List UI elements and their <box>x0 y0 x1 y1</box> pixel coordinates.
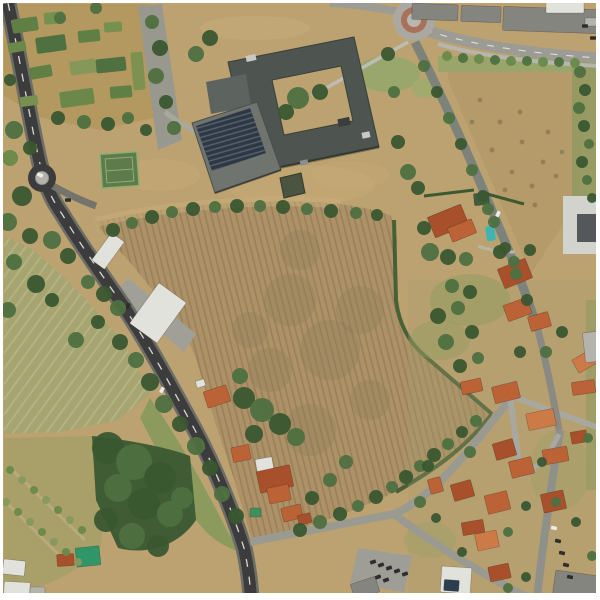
tree <box>587 193 597 203</box>
tree <box>411 181 425 195</box>
tree <box>431 513 441 523</box>
tree <box>91 315 105 329</box>
tree <box>43 231 61 249</box>
tree <box>230 199 244 213</box>
screenshot-frame: Aerial satellite view of a suburban area… <box>0 0 600 600</box>
tree <box>159 95 173 109</box>
tree <box>45 293 59 307</box>
soil-smudge <box>350 380 390 420</box>
tree <box>12 186 32 206</box>
tree <box>140 124 152 136</box>
garden-plot <box>104 21 123 32</box>
tree <box>524 244 536 256</box>
tree <box>287 428 305 446</box>
tree <box>62 548 70 556</box>
tree <box>112 334 128 350</box>
building-roof <box>412 3 459 21</box>
tree <box>573 102 585 114</box>
tree <box>305 491 319 505</box>
tree <box>422 460 434 472</box>
tree <box>94 508 118 532</box>
tree <box>152 40 168 56</box>
tree <box>438 334 454 350</box>
tree <box>339 455 353 469</box>
building-roof <box>571 379 596 395</box>
tree <box>54 506 62 514</box>
tree <box>128 352 144 368</box>
tree <box>400 164 416 180</box>
tree <box>42 496 50 504</box>
tree <box>488 216 500 228</box>
tree <box>430 308 446 324</box>
tree <box>276 200 290 214</box>
car <box>582 24 588 28</box>
building-roof <box>2 559 25 576</box>
grass-tuft <box>520 140 525 145</box>
building-roof <box>250 508 261 517</box>
tree <box>459 252 473 266</box>
tree <box>583 433 593 443</box>
tree <box>464 446 476 458</box>
tree <box>167 121 181 135</box>
tree <box>470 415 482 427</box>
building-roof <box>461 5 502 22</box>
tree <box>465 325 479 339</box>
tree <box>126 217 138 229</box>
tree <box>60 248 76 264</box>
tree <box>414 496 426 508</box>
tree <box>442 51 452 61</box>
tree <box>381 47 395 61</box>
tree <box>582 175 592 185</box>
border-bottom <box>0 593 600 600</box>
tree <box>51 111 65 125</box>
tree <box>540 346 552 358</box>
tree <box>418 60 430 72</box>
tree <box>455 138 467 150</box>
grass-tuft <box>533 203 538 208</box>
tree <box>68 332 84 348</box>
roundabout-west <box>28 164 56 192</box>
tree <box>333 507 347 521</box>
tree <box>440 249 456 265</box>
building-roof <box>546 2 584 13</box>
border-top <box>0 0 600 3</box>
tree <box>214 486 230 502</box>
tree <box>521 294 533 306</box>
tree <box>122 112 134 124</box>
grass-tuft <box>546 130 551 135</box>
soil-smudge <box>232 312 268 348</box>
tree <box>23 141 37 155</box>
tree <box>391 135 405 149</box>
grass-tuft <box>541 160 546 165</box>
dirt-patch <box>310 161 390 189</box>
tree <box>171 487 193 509</box>
car <box>65 198 71 202</box>
tree <box>477 190 489 202</box>
grass-tuft <box>490 148 495 153</box>
tree <box>556 326 568 338</box>
tree <box>50 538 58 546</box>
tree <box>427 448 441 462</box>
tree <box>269 413 291 435</box>
tree <box>6 254 22 270</box>
tree <box>551 497 561 507</box>
tree <box>538 57 548 67</box>
tree <box>503 583 513 593</box>
tree <box>451 301 465 315</box>
tree <box>26 518 34 526</box>
building-roof <box>4 581 31 594</box>
tree <box>352 500 364 512</box>
tree <box>503 527 513 537</box>
tree <box>30 486 38 494</box>
tree <box>472 352 484 364</box>
tree <box>521 501 531 511</box>
aerial-photo <box>0 0 600 600</box>
tree <box>145 210 159 224</box>
tree <box>510 268 522 280</box>
tree <box>371 209 383 221</box>
tree <box>145 15 159 29</box>
tree <box>155 395 173 413</box>
soil-smudge <box>264 274 316 326</box>
tree <box>508 256 520 268</box>
tree <box>128 488 160 520</box>
tree <box>119 523 145 549</box>
grass-tuft <box>503 188 508 193</box>
tree <box>104 474 132 502</box>
tree <box>466 164 478 176</box>
grass-tuft <box>478 98 483 103</box>
tree <box>22 228 38 244</box>
tree <box>301 203 313 215</box>
tree <box>463 285 477 299</box>
tree <box>506 56 516 66</box>
grass-tuft <box>560 150 565 155</box>
border-left <box>0 0 3 600</box>
tree <box>474 54 484 64</box>
tree <box>110 300 126 316</box>
tree <box>245 425 263 443</box>
tree <box>350 207 362 219</box>
tree <box>2 150 18 166</box>
grass-tuft <box>498 120 503 125</box>
tree <box>417 221 431 235</box>
grass-tuft <box>554 174 559 179</box>
garden-plot <box>77 29 100 43</box>
grass-tuft <box>518 110 523 115</box>
soil-smudge <box>248 348 292 392</box>
sports-court <box>100 152 139 188</box>
tree <box>431 86 443 98</box>
tree <box>521 572 531 582</box>
tree <box>38 528 46 536</box>
tree <box>232 368 248 384</box>
tree <box>421 243 439 261</box>
tree <box>5 121 23 139</box>
tree <box>323 473 337 487</box>
shed <box>280 173 305 198</box>
tree <box>78 526 86 534</box>
tree <box>202 460 218 476</box>
tree <box>554 57 564 67</box>
tree <box>228 508 244 524</box>
tree <box>514 346 526 358</box>
tree <box>369 490 383 504</box>
tree <box>6 466 14 474</box>
office-building-east <box>563 196 600 254</box>
grass-tuft <box>510 170 515 175</box>
tree <box>147 535 169 557</box>
tree <box>522 56 532 66</box>
tree <box>584 139 594 149</box>
tree <box>576 156 588 168</box>
tree <box>490 55 500 65</box>
tree <box>106 223 120 237</box>
tree <box>312 84 328 100</box>
tree <box>457 547 467 557</box>
tree <box>101 117 115 131</box>
tree <box>90 2 102 14</box>
grass-tuft <box>530 184 535 189</box>
tree <box>313 515 327 529</box>
tree <box>399 470 413 484</box>
tree <box>578 120 590 132</box>
tree <box>579 84 591 96</box>
tree <box>202 30 218 46</box>
tree <box>187 437 205 455</box>
grass-tuft <box>470 120 475 125</box>
border-right <box>596 0 600 600</box>
tree <box>4 74 16 86</box>
tree <box>456 426 468 438</box>
tree <box>166 206 178 218</box>
tree <box>188 46 204 62</box>
tree <box>2 498 10 506</box>
tree <box>18 476 26 484</box>
tree <box>141 373 159 391</box>
tree <box>66 516 74 524</box>
building-roof <box>444 579 460 591</box>
tree <box>96 286 112 302</box>
tree <box>74 558 82 566</box>
tree <box>445 279 459 293</box>
tree <box>442 438 454 450</box>
tree <box>77 115 91 129</box>
tree <box>254 200 266 212</box>
soil-smudge <box>280 230 320 270</box>
tree <box>278 104 294 120</box>
tree <box>14 508 22 516</box>
tree <box>324 204 338 218</box>
tree <box>148 68 164 84</box>
tree <box>443 112 455 124</box>
tree <box>493 245 507 259</box>
tree <box>81 275 95 289</box>
tree <box>386 481 398 493</box>
tree <box>388 86 400 98</box>
tree <box>587 551 597 561</box>
car <box>590 36 596 40</box>
soil-smudge <box>336 286 384 334</box>
tree <box>453 359 467 373</box>
garden-plot <box>110 85 133 99</box>
tree <box>27 275 45 293</box>
tree <box>54 12 66 24</box>
tree <box>537 457 547 467</box>
tree <box>482 203 494 215</box>
tree <box>570 58 580 68</box>
tree <box>172 416 188 432</box>
tree <box>250 398 274 422</box>
tree <box>209 201 221 213</box>
tree <box>293 523 307 537</box>
tree <box>186 202 200 216</box>
tree <box>571 517 581 527</box>
tree <box>458 53 468 63</box>
